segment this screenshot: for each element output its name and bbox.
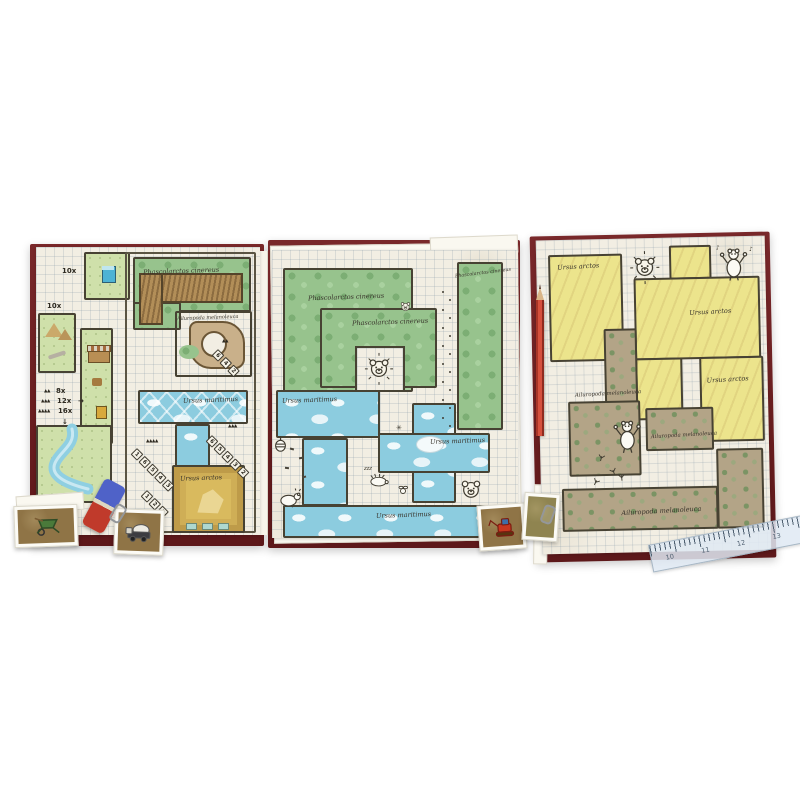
polar-bear-doodle-icon — [278, 490, 303, 507]
legend-triangles-2: ▲▲▲ — [41, 400, 50, 405]
middle-board-page: Phascolarctos cinereus Phascolarctos cin… — [272, 250, 518, 538]
food-stand-awning — [87, 345, 111, 352]
rock-icon — [192, 487, 228, 517]
brown-bear-meadow-main — [634, 276, 762, 361]
footprint-trail — [440, 288, 454, 428]
sleeping-hedgehog-icon — [368, 473, 391, 486]
dice-chain-b-triangles: ▲▲▲ — [228, 425, 237, 430]
asterisk-mark: ✳ — [396, 424, 402, 432]
cheering-panda-icon — [613, 420, 641, 454]
koala-forest-strip-zone — [457, 262, 503, 430]
cement-truck-icon — [124, 521, 155, 544]
excavator-polaroid — [476, 502, 527, 551]
pencil-lead — [539, 284, 541, 289]
glowing-bear-statue-icon — [629, 250, 661, 286]
wheelbarrow-icon — [31, 515, 62, 536]
bee-icon — [398, 485, 408, 494]
dice-chain-a-triangles: ▲▲ — [222, 340, 228, 345]
polar-water-south-zone — [283, 505, 490, 538]
fly-dash — [290, 448, 294, 450]
legend-arrow-down: ↓ — [62, 419, 68, 426]
bird-track-icon — [589, 475, 603, 489]
dice-chain-c-triangles: ▲▲▲▲ — [146, 440, 158, 445]
label-brown-bear-pit: Ursus arctos — [180, 474, 222, 483]
bird-track-icon — [616, 472, 627, 483]
fly-dash — [285, 467, 289, 469]
red-pencil — [536, 300, 544, 436]
beehive-icon — [274, 436, 287, 452]
worker-icon — [96, 406, 107, 419]
tent-icon — [58, 329, 72, 340]
porta-potty-roof — [102, 266, 114, 270]
legend-arrow-right: → — [78, 398, 84, 405]
tent-count-label: 10x — [47, 303, 61, 310]
cart-icon — [92, 378, 102, 386]
tent-zone — [38, 313, 76, 373]
legend-triangles-3: ▲▲▲▲ — [38, 410, 50, 415]
ruler-number: 11 — [701, 545, 711, 554]
panda-bamboo-column — [604, 328, 639, 411]
legend-count-1: 8x — [56, 388, 65, 395]
ruler-number: 12 — [736, 538, 746, 547]
shrub — [179, 345, 199, 359]
sleep-zzz-text: zzz — [364, 466, 372, 472]
dancing-bear-icon — [720, 248, 748, 282]
viewing-window — [218, 523, 229, 530]
koala-statue-clearing — [355, 346, 405, 392]
toilet-count-label: 10x — [62, 268, 76, 275]
wheelbarrow-polaroid — [13, 504, 78, 548]
brown-bear-meadow-arm — [669, 245, 712, 280]
ruler-number: 10 — [665, 552, 675, 561]
bear-face-doodle-icon — [460, 478, 482, 502]
excavator-icon — [487, 515, 517, 541]
koala-statue-icon — [364, 352, 394, 386]
panda-bamboo-mid — [645, 407, 714, 451]
legend-triangles-1: ▲▲ — [44, 390, 50, 395]
toilet-zone — [84, 252, 130, 300]
log-icon — [48, 350, 66, 359]
legend-count-3: 16x — [58, 408, 72, 415]
koala-house-wing — [139, 273, 163, 325]
right-board-group: Ursus arctos Ursus arctos ♪ ♪ Ursus arct… — [530, 228, 779, 567]
right-board-page: Ursus arctos Ursus arctos ♪ ♪ Ursus arct… — [536, 236, 772, 555]
music-note: ♪ — [749, 246, 753, 253]
koala-icon — [400, 301, 411, 313]
viewing-window — [202, 523, 213, 530]
polar-water-west-stem — [302, 438, 348, 506]
legend-count-2: 12x — [57, 398, 71, 405]
panda-bamboo-east-column — [716, 448, 765, 529]
ruler-number: 13 — [772, 532, 782, 541]
photo-of-three-zoo-map-boards: 10x 10x ▲▲ 8x ▲▲▲ 12x → ▲▲▲▲ 16x ↓ — [0, 0, 800, 800]
viewing-window — [186, 523, 197, 530]
